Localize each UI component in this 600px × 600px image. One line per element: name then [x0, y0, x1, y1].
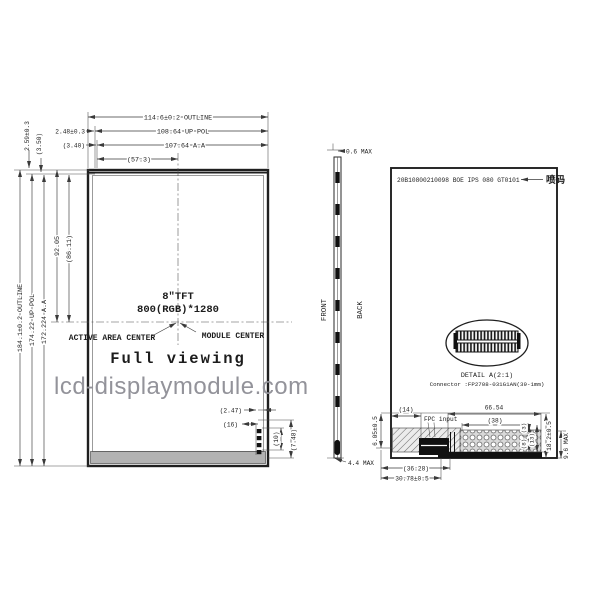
- fpc-connector-block: [419, 438, 449, 455]
- front-dimensions-left: 184.1±0.2 OUTLINE 174.22 UP POL 172.224 …: [14, 121, 95, 466]
- front-bottom-bezel-shade: [91, 452, 266, 464]
- module-center-label: MODULE CENTER: [202, 332, 265, 341]
- back-panel-outline: [391, 168, 557, 458]
- panel-size-label: 8"TFT: [162, 291, 194, 303]
- dim-stiffener-width: (38): [488, 418, 503, 425]
- detail-connector-row-bottom: [456, 343, 518, 352]
- dim-side-bottom-thickness: 4.4 MAX: [348, 460, 374, 467]
- dim-side-top-thickness: 0.6 MAX: [346, 149, 372, 156]
- dim-right-small-1: (3): [521, 423, 528, 433]
- dim-aa-height: 172.224 A.A: [41, 299, 49, 344]
- side-front-label: FRONT: [321, 298, 329, 321]
- back-view: 20B10800210098 BOE IPS 080 GT0101 喷码 DET…: [372, 168, 570, 482]
- dim-corner-3: (10): [273, 432, 280, 447]
- front-view: 8"TFT 800(RGB)*1280 ACTIVE AREA CENTER M…: [14, 112, 298, 466]
- detail-connector-row-top: [456, 331, 518, 340]
- dim-pol-width: 108.64 UP POL: [157, 128, 209, 136]
- dim-center-half-width: (57.3): [127, 156, 151, 164]
- dim-fpc-left-vertical: 6.05±0.5: [372, 416, 379, 446]
- front-dimensions-top: 114.6±0.2 OUTLINE 108.64 UP POL 107.64 A…: [55, 112, 268, 168]
- dim-bottom-outer: (36.28): [403, 465, 429, 472]
- dim-left-margin: 2.59±0.3: [24, 121, 31, 151]
- dim-center-half-height: 92.05: [54, 236, 62, 256]
- dim-right-mid: (13): [529, 433, 536, 447]
- dim-bottom-inner: 30.78±0.5: [395, 475, 429, 482]
- dim-top-margin-pol: (3.40): [63, 143, 85, 150]
- side-back-label: BACK: [357, 301, 365, 319]
- dim-corner-2: (16): [223, 422, 238, 429]
- module-center-leader: [180, 323, 196, 332]
- watermark-text: lcd-displaymodule.com: [54, 373, 309, 400]
- active-area-center-label: ACTIVE AREA CENTER: [69, 334, 156, 343]
- dim-left-margin-pol: (3.50): [36, 133, 43, 155]
- dim-aa-width: 107.64 A.A: [165, 142, 206, 150]
- fpc-input-label: FPC input: [424, 416, 458, 423]
- fpc-tail-strip: [438, 452, 542, 458]
- dim-outline-height: 184.1±0.2 OUTLINE: [17, 284, 25, 352]
- dim-right-small-2: (8): [521, 439, 528, 449]
- side-fpc-fold: [335, 440, 340, 455]
- panel-resolution-label: 800(RGB)*1280: [137, 304, 219, 316]
- detail-title: DETAIL A(2:1): [461, 372, 513, 380]
- side-view: 0.6 MAX 4.4 MAX FRONT BACK: [321, 144, 374, 468]
- dim-pol-height: 174.22 UP POL: [29, 294, 37, 346]
- dim-outline-width: 114.6±0.2 OUTLINE: [144, 114, 212, 122]
- dim-corner-1: (2.47): [220, 408, 242, 415]
- front-step-pads: [257, 429, 262, 454]
- drawing-canvas: 8"TFT 800(RGB)*1280 ACTIVE AREA CENTER M…: [0, 0, 600, 600]
- dim-center-half-aa-height: (86.11): [66, 235, 74, 263]
- dim-back-thickness: 9.6 MAX: [563, 433, 570, 459]
- dim-top-margin: 2.48±0.3: [55, 129, 85, 136]
- technical-drawing: 8"TFT 800(RGB)*1280 ACTIVE AREA CENTER M…: [0, 0, 600, 600]
- dim-corner-4: (7.48): [291, 429, 298, 451]
- marking-label: 喷码: [546, 174, 566, 186]
- dim-right-outer: 18.2±0.5: [546, 421, 553, 451]
- serial-marking-text: 20B10800210098 BOE IPS 080 GT0101: [397, 177, 520, 184]
- full-viewing-label: Full viewing: [110, 350, 246, 368]
- dim-fpc-left-offset: (14): [399, 407, 414, 414]
- front-center-annotations: 8"TFT 800(RGB)*1280 ACTIVE AREA CENTER M…: [69, 291, 265, 368]
- active-center-leader: [152, 323, 176, 336]
- detail-connector-name: Connector :FP2708-031G1AN(39-1mm): [430, 381, 545, 388]
- dim-fpc-width: 66.54: [485, 405, 504, 412]
